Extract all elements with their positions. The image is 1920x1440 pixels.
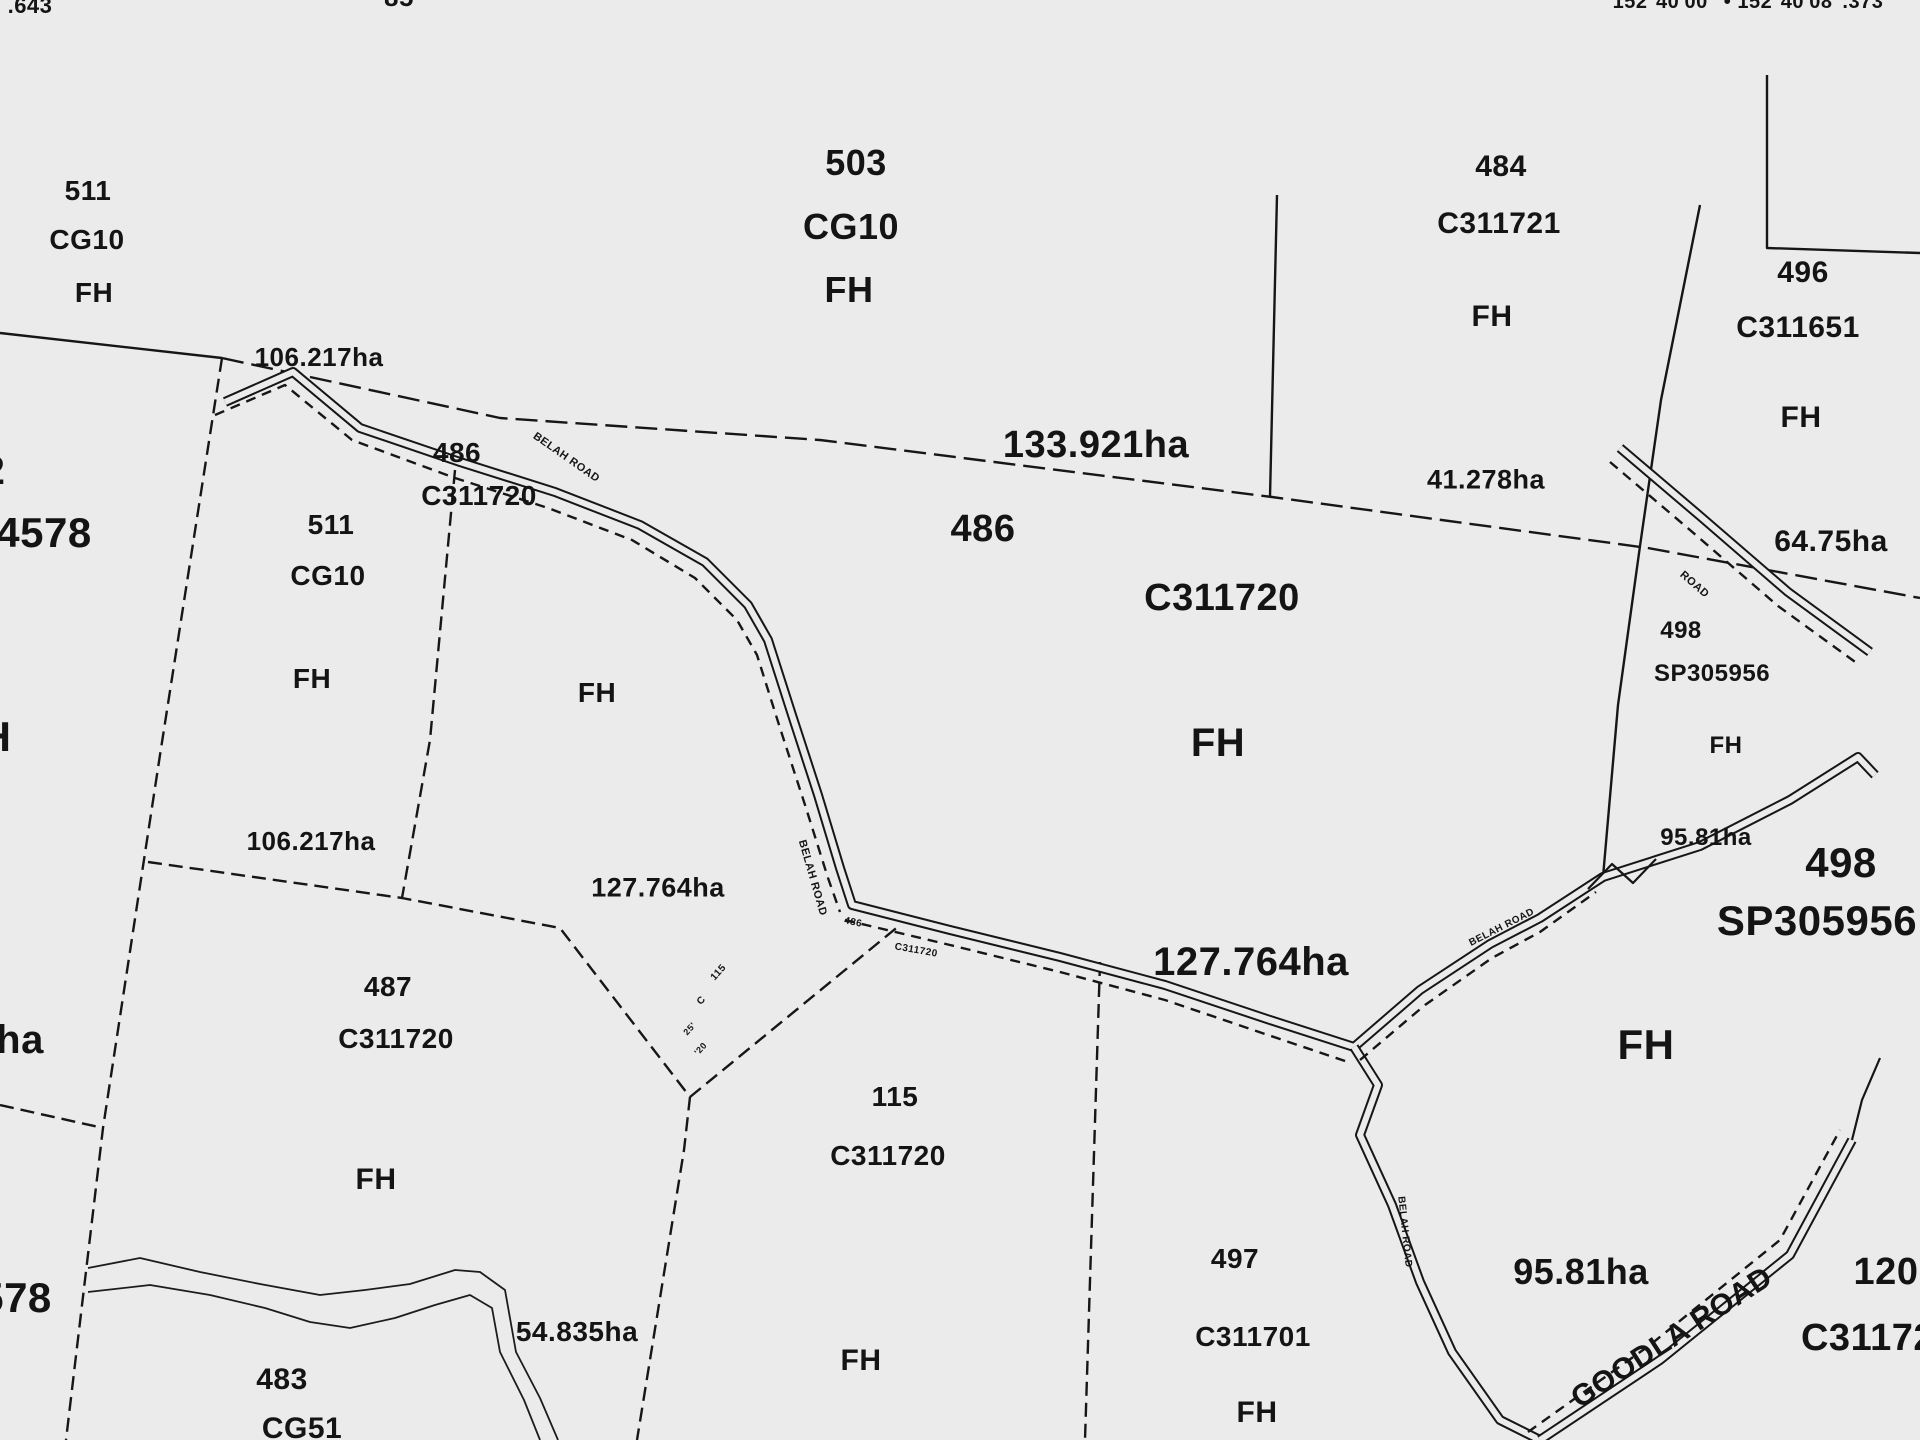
edge-fragment-c31172: C31172 — [1801, 1319, 1920, 1357]
boundary-486-498 — [1603, 205, 1700, 877]
belah-road-south-branch-casing — [1354, 1047, 1540, 1440]
area-127a: 127.764ha — [591, 875, 725, 902]
parcel-511b-plan: CG10 — [290, 562, 365, 590]
parcel-498b-plan: SP305956 — [1717, 900, 1917, 942]
boundary-west-spur — [0, 1105, 103, 1128]
parcel-511a-lot: 511 — [65, 177, 112, 205]
parcel-498a-lot: 498 — [1660, 619, 1702, 643]
parcel-487-plan: C311720 — [338, 1025, 454, 1053]
north-arrow-icon: N — [1040, 0, 1074, 7]
parcel-498b-tenure: FH — [1618, 1024, 1675, 1066]
edge-fragment-120: 120 — [1854, 1253, 1919, 1291]
boundary-496-corner — [1767, 75, 1920, 253]
longitude-coordinates: 152°40'00" • 152°40'08".373 — [1613, 0, 1884, 12]
parcel-496-tenure: FH — [1781, 403, 1822, 433]
edge-fragment-2: 2 — [0, 451, 5, 491]
parcel-483-plan: CG51 — [262, 1414, 342, 1440]
parcel-503-plan: CG10 — [803, 209, 899, 245]
parcel-484-plan: C311721 — [1437, 209, 1561, 239]
area-95b: 95.81ha — [1513, 1254, 1649, 1290]
parcel-511a-tenure: FH — [75, 279, 113, 307]
area-127b: 127.764ha — [1153, 942, 1349, 982]
belah-road-inner — [225, 372, 1875, 1047]
parcel-497-lot: 497 — [1211, 1245, 1259, 1273]
parcel-115-plan: C311720 — [830, 1142, 946, 1170]
boundary-south-of-top-parcels — [222, 358, 1920, 598]
parcel-483-lot: 483 — [256, 1365, 308, 1395]
parcel-496-plan: C311651 — [1736, 313, 1860, 343]
belah-road-casing — [225, 372, 1875, 1047]
road-reserve-dash-ne — [1360, 892, 1596, 1060]
parcel-511b-lot: 511 — [308, 511, 355, 539]
boundary-115-northwest — [690, 925, 900, 1097]
area-41: 41.278ha — [1427, 467, 1545, 494]
belah-road-south-branch-inner — [1354, 1047, 1540, 1440]
parcel-487-tenure: FH — [356, 1165, 397, 1195]
parcel-497-plan: C311701 — [1195, 1323, 1311, 1351]
parcel-498a-tenure: FH — [1710, 734, 1743, 758]
boundary-503-484 — [1270, 195, 1277, 497]
coord-fragment-west: .643 — [8, 0, 53, 17]
boundary-487-north — [148, 862, 690, 1440]
goodla-road-stub — [1852, 1058, 1880, 1140]
boundary-top-left — [0, 333, 222, 358]
parcel-486w-lot: 486 — [433, 439, 481, 467]
edge-fragment-ha: ha — [0, 1020, 44, 1060]
edge-fragment-h: H — [0, 716, 11, 758]
edge-fragment-4578: 4578 — [0, 512, 92, 554]
parcel-498a-plan: SP305956 — [1654, 662, 1770, 686]
boundary-115-497 — [1085, 962, 1100, 1440]
parcel-486-tenure: FH — [1191, 723, 1245, 763]
parcel-511a-plan: CG10 — [49, 226, 124, 254]
parcel-498b-lot: 498 — [1805, 842, 1877, 884]
lot-fragment-85: 85 — [384, 0, 414, 10]
area-133: 133.921ha — [1003, 426, 1189, 464]
parcel-486w-plan: C311720 — [421, 482, 537, 510]
cadastral-map[interactable]: .64385N152°40'00" • 152°40'08".373511CG1… — [0, 0, 1920, 1440]
parcel-484-tenure: FH — [1472, 302, 1513, 332]
boundary-511b-east — [402, 470, 455, 898]
area-64: 64.75ha — [1774, 527, 1888, 557]
parcel-511b-tenure: FH — [293, 665, 331, 693]
parcel-503-tenure: FH — [825, 272, 874, 308]
parcel-boundary-lines — [0, 0, 1920, 1440]
parcel-503-lot: 503 — [825, 145, 887, 181]
parcel-115-lot: 115 — [872, 1083, 919, 1111]
area-54: 54.835ha — [516, 1318, 638, 1346]
parcel-484-lot: 484 — [1475, 152, 1527, 182]
area-95a: 95.81ha — [1660, 826, 1752, 850]
parcel-486w-tenure: FH — [578, 679, 616, 707]
parcel-487-lot: 487 — [364, 973, 412, 1001]
area-106b: 106.217ha — [247, 828, 376, 854]
area-106a: 106.217ha — [255, 344, 384, 370]
parcel-497-tenure: FH — [1237, 1398, 1278, 1428]
parcel-496-lot: 496 — [1777, 258, 1829, 288]
parcel-486-plan: C311720 — [1144, 579, 1300, 617]
parcel-486-lot: 486 — [951, 510, 1016, 548]
parcel-115-tenure: FH — [841, 1346, 882, 1376]
edge-fragment-578: 578 — [0, 1277, 52, 1319]
